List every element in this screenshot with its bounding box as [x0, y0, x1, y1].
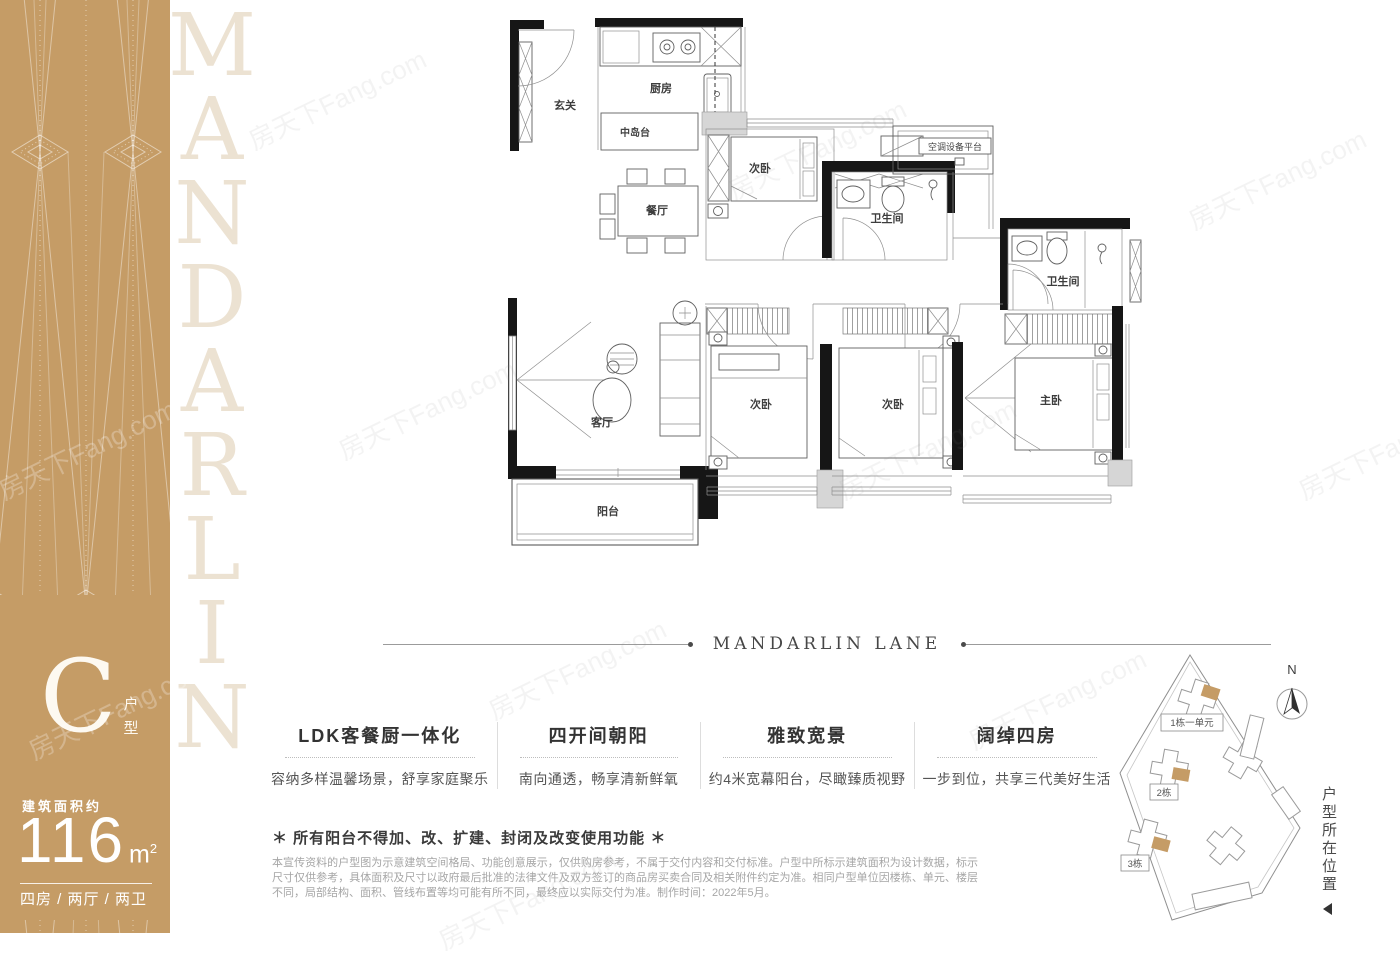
- dotted-divider: [520, 757, 678, 758]
- sidebar: C 户型 建筑面积约 116 m2 四房 / 两厅 / 两卫: [0, 0, 170, 933]
- dotted-divider: [723, 757, 892, 758]
- feature-title: LDK客餐厨一体化: [271, 722, 489, 748]
- layout-summary: 四房 / 两厅 / 两卫: [20, 888, 147, 909]
- slab-building-2: [1272, 787, 1301, 820]
- location-note: 户型所在位置: [1318, 786, 1339, 894]
- bedroom-2-label: 次卧: [750, 397, 772, 411]
- living-room: 客厅: [508, 298, 700, 470]
- building-unlabeled-1: [1218, 735, 1267, 784]
- master-label: 主卧: [1040, 393, 1062, 407]
- location-pointer-icon: [1323, 903, 1332, 915]
- south-windows: [707, 487, 1111, 503]
- kitchen-label: 厨房: [650, 81, 672, 95]
- watermark: 房天下Fang.com: [242, 39, 432, 157]
- disclaimer: ＊ 所有阳台不得加、改、扩建、封闭及改变使用功能 ＊ 本宣传资料的户型图为示意建…: [272, 827, 978, 901]
- siteplan: 1栋一单元 2栋 3栋 N: [1105, 648, 1315, 938]
- building-unlabeled-2: [1200, 820, 1251, 871]
- feature-ldk: LDK客餐厨一体化 容纳多样温馨场景，舒享家庭聚乐: [263, 722, 497, 789]
- building-2: [1148, 748, 1193, 790]
- dining-room: 餐厅: [600, 169, 698, 253]
- balcony-label: 阳台: [597, 504, 619, 518]
- floorplan: 玄关 厨房 中岛台 餐厅: [495, 8, 1145, 573]
- entry-room: 玄关: [510, 20, 576, 151]
- slab-building-3: [1192, 882, 1252, 910]
- watermark: 房天下Fang.com: [482, 609, 672, 727]
- feature-desc: 南向通透，畅享清新鲜氧: [506, 769, 692, 789]
- title-dot-left-icon: [688, 642, 693, 647]
- title-rule-left: [383, 644, 688, 645]
- feature-desc: 约4米宽幕阳台，尽瞰臻质视野: [709, 769, 906, 789]
- island-label: 中岛台: [620, 126, 650, 139]
- watermark: 房天下Fang.com: [1292, 389, 1400, 507]
- feature-wide-view: 雅致宽景 约4米宽幕阳台，尽瞰臻质视野: [700, 722, 914, 789]
- unit-type: C 户型: [40, 648, 162, 746]
- entry-label: 玄关: [554, 98, 576, 112]
- slab-building-1: [1240, 715, 1264, 759]
- watermark: 房天下Fang.com: [332, 349, 522, 467]
- bathroom-1: 卫生间: [822, 161, 955, 260]
- bathroom-2-label: 卫生间: [1047, 274, 1080, 288]
- feature-list: LDK客餐厨一体化 容纳多样温馨场景，舒享家庭聚乐 四开间朝阳 南向通透，畅享清…: [263, 722, 1119, 789]
- bedroom-2: 次卧: [706, 304, 843, 508]
- dotted-divider: [937, 757, 1098, 758]
- bedroom-top-room: 次卧: [706, 129, 834, 260]
- building-2-label: 2栋: [1157, 787, 1172, 799]
- sidebar-divider: [20, 883, 152, 884]
- dining-label: 餐厅: [645, 203, 668, 217]
- bedroom-3: 次卧: [832, 304, 1039, 476]
- bathroom-2: 卫生间: [1000, 218, 1141, 310]
- brand-title: MANDARLIN LANE: [713, 634, 941, 654]
- floorplan-drawing: 玄关 厨房 中岛台 餐厅: [495, 8, 1145, 568]
- area-unit: m2: [129, 829, 157, 874]
- area-value-row: 116 m2: [17, 806, 157, 874]
- compass-icon: N: [1277, 662, 1307, 719]
- bathroom-1-label: 卫生间: [871, 211, 904, 225]
- bedroom-top-label: 次卧: [749, 161, 771, 175]
- title-rule-right: [966, 644, 1271, 645]
- feature-south-facing: 四开间朝阳 南向通透，畅享清新鲜氧: [497, 722, 700, 789]
- balcony: 阳台: [508, 466, 718, 545]
- building-3-label: 3栋: [1128, 858, 1143, 870]
- building-1-label: 1栋一单元: [1170, 717, 1214, 729]
- dotted-divider: [285, 757, 475, 758]
- feature-four-rooms: 阔绰四房 一步到位，共享三代美好生活: [914, 722, 1120, 789]
- living-label: 客厅: [590, 415, 613, 429]
- feature-desc: 容纳多样温馨场景，舒享家庭聚乐: [271, 769, 489, 789]
- area-value: 116: [17, 806, 125, 874]
- bedroom-3-label: 次卧: [882, 397, 904, 411]
- brand-vertical-text: MANDARLIN LANE: [168, 0, 256, 936]
- ac-platform-label: 空调设备平台: [928, 141, 982, 152]
- kitchen-room: 厨房 中岛台: [595, 18, 747, 150]
- siteplan-drawing: 1栋一单元 2栋 3栋 N: [1105, 648, 1315, 933]
- disclaimer-body: 本宣传资料的户型图为示意建筑空间格局、功能创意展示，仅供购房参考，不属于交付内容…: [272, 856, 978, 901]
- feature-desc: 一步到位，共享三代美好生活: [923, 769, 1112, 789]
- feature-title: 雅致宽景: [709, 722, 906, 748]
- feature-title: 四开间朝阳: [506, 722, 692, 748]
- unit-type-suffix: 户型: [120, 696, 141, 746]
- disclaimer-headline: ＊ 所有阳台不得加、改、扩建、封闭及改变使用功能 ＊: [272, 827, 978, 848]
- watermark: 房天下Fang.com: [1182, 119, 1372, 237]
- feature-title: 阔绰四房: [923, 722, 1112, 748]
- master-bedroom: 主卧: [963, 264, 1132, 486]
- unit-type-letter: C: [40, 648, 117, 746]
- compass-north-label: N: [1287, 662, 1296, 677]
